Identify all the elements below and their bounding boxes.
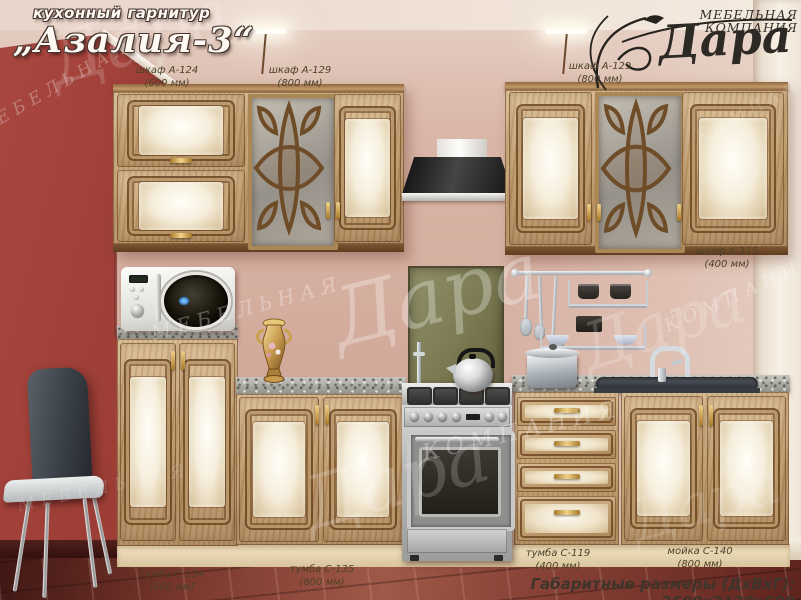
rail-end-cap [644,269,652,277]
utensil-rail [515,271,648,275]
glass-door-a129 [248,94,338,250]
oven-window [419,447,501,517]
faucet-base [658,368,666,382]
stove-knob [410,412,419,421]
callout-moyka-c140: мойка С-140(800 мм) [645,545,755,571]
door-a129-solid [509,92,592,245]
door-c135-left [239,397,319,542]
callout-tumba-c135: тумба С-135(800 мм) [267,563,377,589]
kettle-body [453,358,493,392]
stove-foot [410,555,419,561]
decorative-vase [254,316,294,391]
door-handle [170,233,192,238]
stove-drawer [407,529,507,553]
overall-dimensions: Габаритные размеры (ДхВхГ): 2600х2120х60… [430,575,795,600]
kettle-spout [446,364,456,376]
stove-knob [452,412,461,421]
glass-lattice [599,96,673,241]
microwave-glow [179,297,189,305]
burner-grate [407,387,432,405]
flip-door-a124-bottom [117,170,245,242]
callout-tumba-c134: тумба С-134(600 мм) [117,568,227,594]
stove-control-panel [404,407,510,427]
sink-front-edge [594,388,760,393]
oven-handle [415,437,499,442]
kitchen-poster: МЕБЕЛЬНАЯ Дара МЕБЕЛЬНАЯ Дара КОМПАНИЯ Д… [0,0,801,600]
glass-door-a129 [595,92,685,253]
door-c140-left [624,396,703,541]
door-handle [587,204,591,221]
rail-end-cap [511,269,519,277]
product-title: „Азалия-3“ [13,23,255,58]
spice-box [576,316,602,332]
upper-cabinet-group-left [113,84,404,252]
microwave [121,267,235,331]
glass-lattice [252,98,326,238]
microwave-button [134,295,139,300]
callout-shkaf-a129-right: шкаф А-129(800 мм) [545,60,655,86]
product-category: кухонный гарнитур [33,6,210,21]
microwave-button [130,287,135,292]
vase-graphic [254,316,294,386]
callout-shkaf-a124: шкаф А-124(600 мм) [112,64,222,90]
gas-stove [402,383,512,561]
oven-door [407,431,515,531]
door-a129-solid [334,94,401,242]
microwave-controls [127,274,153,324]
drawer-deep [517,496,616,541]
base-cabinet-c135 [236,394,406,545]
spatula-head [520,318,532,336]
hood-trim-band [402,193,513,201]
brand-name: Дара [651,12,799,66]
microwave-window [161,272,231,330]
door-handle [181,351,185,370]
microwave-dial [131,304,144,317]
drawer-handle [554,474,580,479]
microwave-display [129,275,148,283]
door-handle [699,405,703,426]
door-c135-right [323,397,403,542]
stove-foot [494,555,503,561]
upper-cabinet-group-right [505,82,788,255]
gas-valve [413,352,425,356]
microwave-button [139,287,144,292]
door-handle [677,204,681,221]
faucet [650,346,690,377]
drawer-handle [554,408,580,413]
door-handle [325,405,329,425]
callout-shkaf-a115: шкаф А-115(400 мм) [672,245,782,271]
door-handle [170,158,192,163]
sink-cabinet-c140 [621,392,789,545]
tall-base-unit-c134 [117,326,238,546]
door-handle [336,202,340,219]
door-c134-right [179,343,235,541]
gas-pipe [417,342,421,384]
kettle [447,350,499,394]
stove-knob [498,412,507,421]
drawer-handle [554,441,580,446]
drawer-handle [554,510,580,515]
stove-knob [424,412,433,421]
hood-chimney [437,139,487,158]
mug [610,284,631,299]
mug [578,284,599,299]
callout-tumba-c119: тумба С-119(400 мм) [503,547,613,573]
door-c140-right [707,396,786,541]
door-handle [326,202,330,219]
flip-door-a124-top [117,94,245,167]
callout-shkaf-a129-left: шкаф А-129(800 мм) [245,64,355,90]
cooking-pot [527,354,577,388]
door-c134-left [120,343,176,541]
pot-lid-knob [549,344,557,350]
door-a115 [682,92,784,245]
door-handle [597,204,601,221]
kettle-knob [469,354,476,359]
door-handle [315,405,319,425]
door-handle [709,405,713,426]
stove-knob [485,412,494,421]
stove-display [466,414,480,420]
drawer-unit-c119 [514,392,619,545]
door-handle [171,351,175,370]
range-hood [402,157,513,194]
stove-knob [438,412,447,421]
